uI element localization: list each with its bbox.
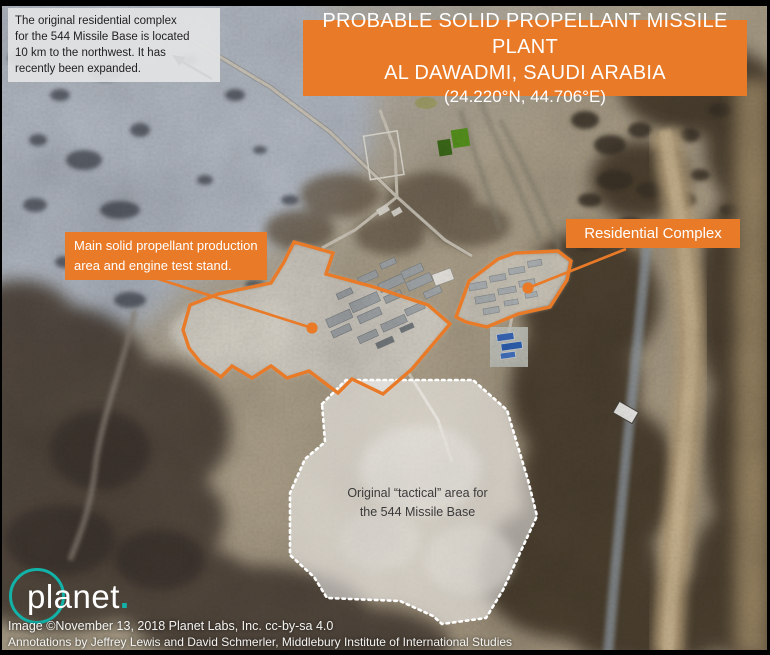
- production-area-label: Main solid propellant production area an…: [65, 232, 267, 280]
- production-label-line: Main solid propellant production: [74, 236, 258, 256]
- note-line: The original residential complex: [15, 13, 213, 29]
- tactical-label-line: the 544 Missile Base: [325, 503, 510, 522]
- credit-line-annotations: Annotations by Jeffrey Lewis and David S…: [8, 635, 512, 650]
- production-leader-dot: [306, 322, 317, 333]
- planet-logo-dot: .: [120, 578, 130, 615]
- residential-leader-dot: [522, 282, 533, 293]
- note-box: The original residential complex for the…: [8, 8, 220, 82]
- planet-wordmark: planet.: [27, 578, 130, 616]
- note-line: for the 544 Missile Base is located: [15, 29, 213, 45]
- credit-line-image: Image ©November 13, 2018 Planet Labs, In…: [8, 619, 512, 635]
- note-line: 10 km to the northwest. It has: [15, 45, 213, 61]
- annotated-satellite-image: PROBABLE SOLID PROPELLANT MISSILE PLANT …: [0, 0, 770, 655]
- residential-complex-label: Residential Complex: [566, 219, 740, 248]
- production-label-line: area and engine test stand.: [74, 256, 258, 276]
- image-credits: Image ©November 13, 2018 Planet Labs, In…: [8, 619, 512, 650]
- title-line-2: AL DAWADMI, SAUDI ARABIA: [303, 60, 747, 86]
- title-line-1: PROBABLE SOLID PROPELLANT MISSILE PLANT: [303, 8, 747, 60]
- note-line: recently been expanded.: [15, 61, 213, 77]
- tactical-area-label: Original “tactical” area for the 544 Mis…: [325, 484, 510, 522]
- title-banner: PROBABLE SOLID PROPELLANT MISSILE PLANT …: [303, 20, 747, 96]
- tactical-label-line: Original “tactical” area for: [325, 484, 510, 503]
- title-coordinates: (24.220°N, 44.706°E): [303, 86, 747, 108]
